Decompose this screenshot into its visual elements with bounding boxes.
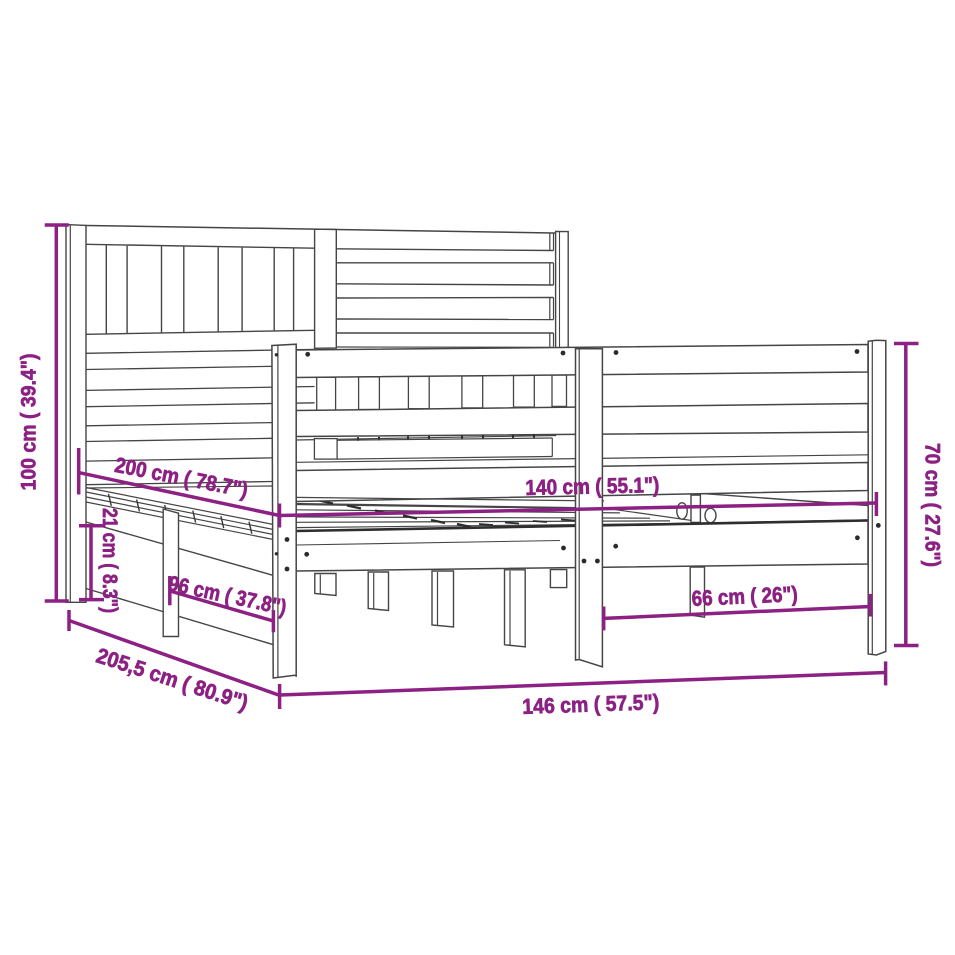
svg-text:21 cm ( 8.3"): 21 cm ( 8.3")	[98, 508, 122, 613]
svg-text:100 cm ( 39.4"): 100 cm ( 39.4")	[17, 354, 41, 491]
svg-text:146 cm ( 57.5"): 146 cm ( 57.5")	[522, 690, 660, 719]
svg-text:140 cm ( 55.1"): 140 cm ( 55.1")	[525, 473, 660, 500]
svg-text:66 cm ( 26"): 66 cm ( 26")	[691, 582, 798, 611]
svg-text:70 cm ( 27.6"): 70 cm ( 27.6")	[921, 443, 945, 567]
